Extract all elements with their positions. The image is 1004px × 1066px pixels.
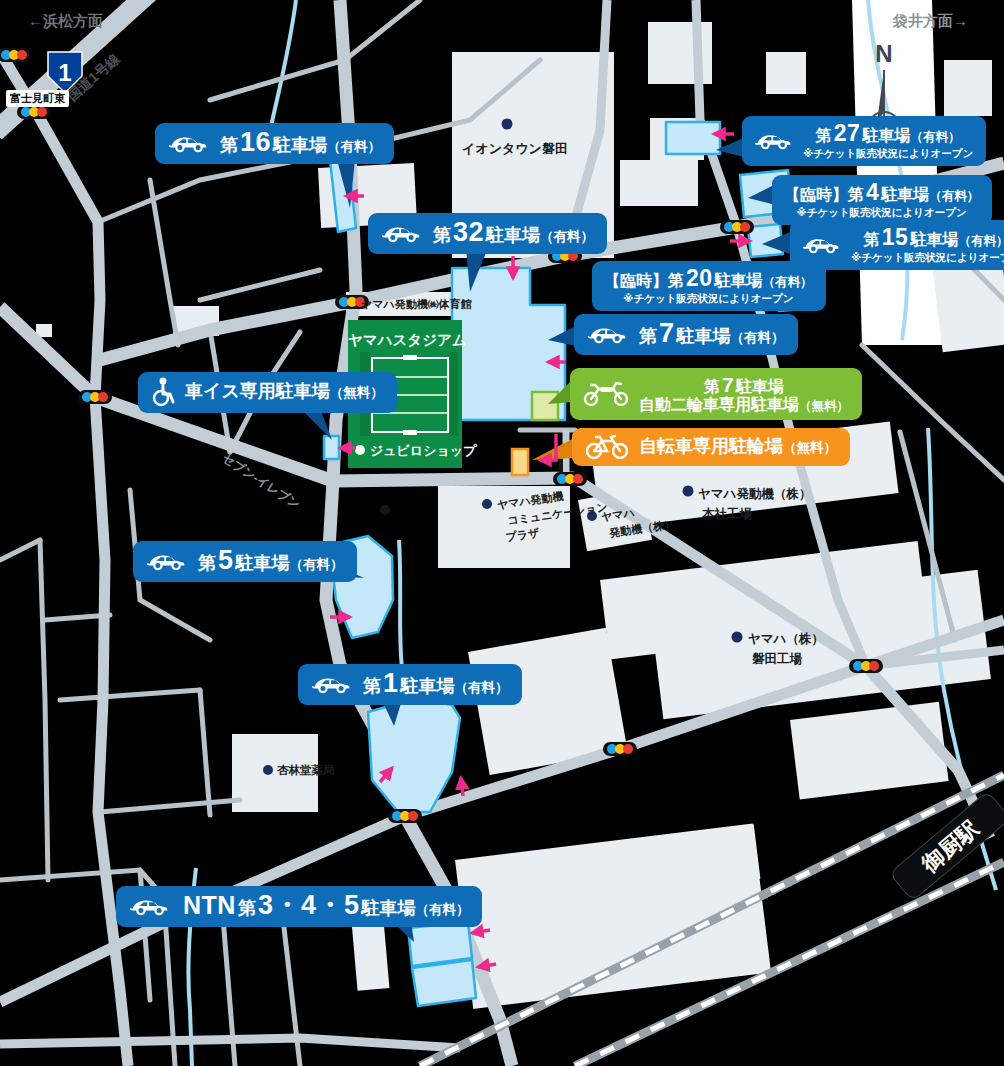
parking-label-32: 第32駐車場（有料）: [368, 213, 607, 254]
route1-number: 1: [58, 59, 71, 86]
car-icon: [167, 133, 211, 153]
parking-20-post: 駐車場: [715, 272, 763, 290]
parking-20-number: 20: [684, 266, 715, 291]
parking-32-fee: （有料）: [540, 230, 594, 245]
parking-7-post: 駐車場: [677, 327, 731, 347]
moto-line2: 自動二輪車専用駐車場: [639, 396, 799, 414]
parking-4-number: 4: [864, 180, 881, 205]
motorcycle-icon: [582, 379, 630, 407]
parking-area-1: [368, 698, 460, 812]
parking-5-fee: （有料）: [290, 558, 344, 573]
parking-label-motorcycle: 第7駐車場 自動二輪車専用駐車場（無料）: [570, 368, 862, 420]
parking-20-fee: （有料）: [763, 276, 813, 290]
parking-7-pre: 第: [639, 327, 657, 347]
iwata-factory-label: ヤマハ（株） 磐田工場: [748, 629, 824, 669]
parking-4-note: ※チケット販売状況によりオープン: [797, 207, 967, 219]
stadium-label: ヤマハスタジアム: [348, 331, 462, 350]
bicycle-icon: [584, 433, 630, 460]
parking-1-number: 1: [381, 669, 401, 699]
parking-15-number: 15: [880, 225, 911, 250]
parking-area-bicycle: [512, 449, 528, 475]
parking-area-ntn-a: [408, 922, 472, 966]
car-icon: [128, 896, 172, 916]
parking-20-pre: 【臨時】第: [604, 272, 684, 290]
shop-label: ジュビロショップ: [370, 442, 476, 460]
parking-32-number: 32: [451, 218, 486, 248]
parking-label-5: 第5駐車場（有料）: [133, 541, 357, 582]
parking-32-post: 駐車場: [486, 226, 540, 246]
bicycle-fee: （無料）: [783, 441, 837, 456]
parking-15-note: ※チケット販売状況によりオープン: [851, 252, 1004, 264]
parking-map: 1 N 御厨駅: [0, 0, 1004, 1066]
ntn-pre: 第: [238, 899, 256, 919]
car-icon: [380, 223, 424, 243]
parking-label-20: 【臨時】第20駐車場（有料） ※チケット販売状況によりオープン: [592, 261, 826, 311]
compass-n-label: N: [875, 40, 892, 67]
parking-15-pre: 第: [864, 231, 880, 249]
parking-7-number: 7: [657, 319, 677, 349]
parking-label-7: 第7駐車場（有料）: [574, 314, 798, 355]
plaza-dot: [482, 499, 492, 509]
car-icon: [586, 324, 630, 344]
parking-27-fee: （有料）: [910, 131, 960, 145]
wheelchair-fee: （無料）: [330, 386, 384, 401]
parking-4-pre: 【臨時】第: [784, 186, 864, 204]
parking-32-pre: 第: [433, 226, 451, 246]
pharmacy-label: 杏林堂薬局: [277, 763, 335, 778]
parking-20-note: ※チケット販売状況によりオープン: [623, 293, 793, 305]
parking-5-number: 5: [216, 546, 236, 576]
parking-4-post: 駐車場: [881, 186, 929, 204]
parking-4-fee: （有料）: [929, 190, 979, 204]
parking-1-pre: 第: [363, 677, 381, 697]
hq-dot: [683, 486, 694, 497]
parking-label-4: 【臨時】第4駐車場（有料） ※チケット販売状況によりオープン: [772, 175, 992, 225]
parking-area-ntn-b: [412, 960, 476, 1006]
bicycle-title: 自転車専用駐輪場: [639, 437, 783, 457]
car-icon: [310, 674, 354, 694]
iwata-dot: [732, 632, 743, 643]
direction-fukuroi: 袋井方面→: [893, 12, 968, 31]
car-icon: [754, 131, 794, 150]
intersection-fujimicho-higashi: 富士見町東: [6, 90, 69, 107]
moto-line1-number: 7: [720, 373, 736, 396]
parking-5-post: 駐車場: [236, 554, 290, 574]
parking-label-bicycle: 自転車専用駐輪場（無料）: [572, 428, 850, 466]
ntn-number: 3・4・5: [256, 891, 362, 921]
direction-hamamatsu: ←浜松方面: [28, 12, 103, 31]
seven-dot: [380, 505, 390, 515]
aeon-label: イオンタウン磐田: [430, 140, 600, 158]
wheelchair-title: 車イス専用駐車場: [185, 382, 330, 402]
pharmacy-dot: [263, 765, 273, 775]
parking-16-post: 駐車場: [273, 136, 327, 156]
car-icon: [802, 235, 842, 254]
moto-line1-post: 駐車場: [736, 378, 784, 396]
parking-16-pre: 第: [220, 136, 238, 156]
wheelchair-icon: [150, 377, 176, 407]
white-band: [852, 0, 942, 345]
parking-label-27: 第27駐車場（有料） ※チケット販売状況によりオープン: [742, 116, 986, 166]
parking-16-fee: （有料）: [327, 140, 381, 155]
parking-27-post: 駐車場: [862, 127, 910, 145]
moto-fee: （無料）: [799, 400, 849, 414]
parking-27-number: 27: [832, 121, 863, 146]
ntn-brand: NTN: [181, 892, 238, 920]
parking-27-pre: 第: [816, 127, 832, 145]
parking-15-post: 駐車場: [910, 231, 958, 249]
parking-1-post: 駐車場: [401, 677, 455, 697]
shop-dot: [355, 445, 365, 455]
parking-1-fee: （有料）: [455, 681, 509, 696]
ntn-post: 駐車場: [361, 899, 415, 919]
parking-label-wheelchair: 車イス専用駐車場（無料）: [138, 372, 397, 413]
aeon-dot: [502, 119, 513, 130]
parking-27-note: ※チケット販売状況によりオープン: [803, 148, 973, 160]
car-icon: [145, 551, 189, 571]
parking-7-fee: （有料）: [731, 331, 785, 346]
hq-factory-label: ヤマハ発動機（株） 本社工場: [698, 484, 811, 524]
parking-label-ntn: NTN第3・4・5駐車場（有料）: [116, 886, 482, 927]
moto-line1-pre: 第: [704, 378, 720, 396]
parking-5-pre: 第: [198, 554, 216, 574]
parking-area-motorcycle: [532, 392, 558, 420]
parking-15-fee: （有料）: [958, 235, 1004, 249]
parking-label-16: 第16駐車場（有料）: [155, 123, 394, 164]
parking-16-number: 16: [238, 128, 273, 158]
parking-area-27: [666, 122, 720, 154]
ntn-fee: （有料）: [415, 903, 469, 918]
gym-label: ヤマハ発動機㈱体育館: [361, 297, 472, 312]
parking-label-1: 第1駐車場（有料）: [298, 664, 522, 705]
